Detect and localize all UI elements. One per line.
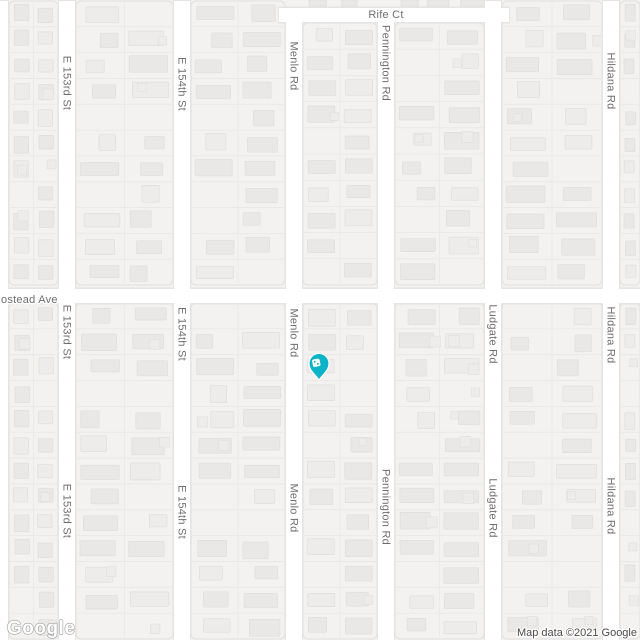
map-viewport[interactable]: E 153rd StE 153rd StE 153rd StE 154th St… xyxy=(0,0,640,640)
street-label-e-153rd-st: E 153rd St xyxy=(61,484,73,538)
street-label-pennington-rd: Pennington Rd xyxy=(380,25,392,101)
street-label-menlo-rd: Menlo Rd xyxy=(288,41,300,90)
street-label-rife-ct: Rife Ct xyxy=(368,9,403,21)
street-label-menlo-rd: Menlo Rd xyxy=(288,483,300,532)
google-logo[interactable]: Google xyxy=(7,618,75,639)
street-label-pennington-rd: Pennington Rd xyxy=(380,469,392,545)
street-label-e-153rd-st: E 153rd St xyxy=(61,56,73,110)
street-label-menlo-rd: Menlo Rd xyxy=(288,308,300,357)
street-label-ludgate-rd: Ludgate Rd xyxy=(487,304,499,363)
street-label-hildana-rd: Hildana Rd xyxy=(605,53,617,110)
street-label-e-153rd-st: E 153rd St xyxy=(61,305,73,359)
street-label-e-154th-st: E 154th St xyxy=(176,485,188,539)
map-canvas[interactable]: E 153rd StE 153rd StE 153rd StE 154th St… xyxy=(0,0,640,640)
street-label-hildana-rd: Hildana Rd xyxy=(605,478,617,535)
street-label-hildana-rd: Hildana Rd xyxy=(605,307,617,364)
street-label-e-154th-st: E 154th St xyxy=(176,307,188,361)
street-label-e-154th-st: E 154th St xyxy=(176,57,188,111)
die-large xyxy=(312,358,321,367)
street-label-ludgate-rd: Ludgate Rd xyxy=(487,478,499,537)
street-label-ostead-ave: ostead Ave xyxy=(1,294,58,306)
map-attribution: Map data ©2021 Google xyxy=(517,627,637,639)
